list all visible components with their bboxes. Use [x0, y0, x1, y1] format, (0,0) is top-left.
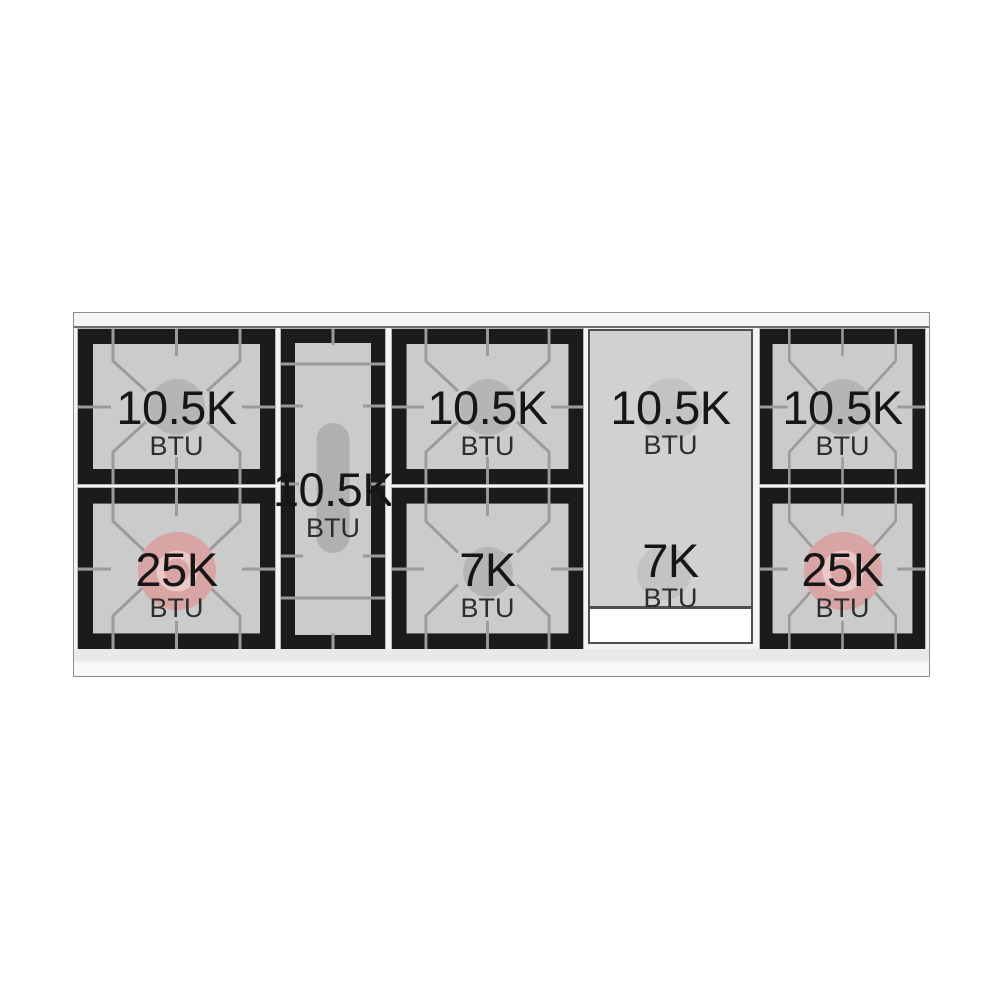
cooktop-back-edge: [74, 313, 929, 328]
burner-cap-icon-high-power: [804, 532, 882, 610]
burner-right-rear: 10.5K BTU: [760, 329, 925, 484]
burner-rating-label: 7K BTU: [590, 537, 751, 612]
burner-cap-icon: [460, 379, 516, 435]
burner-right-front: 25K BTU: [760, 488, 925, 649]
cooktop: 10.5K BTU 25K BTU: [73, 312, 930, 677]
section-griddle: 10.5K BTU 7K BTU: [588, 329, 753, 649]
oval-grate-icon: [281, 329, 385, 649]
burner-cap-icon: [815, 379, 871, 435]
griddle-tray: [588, 608, 753, 644]
burner-center-front: 7K BTU: [392, 488, 583, 649]
btu-power: 7K: [590, 537, 751, 584]
section-center-burner-stack: 10.5K BTU 7K BTU: [392, 329, 583, 649]
cooktop-front-edge: [74, 649, 929, 675]
burner-left-front: 25K BTU: [78, 488, 275, 649]
btu-unit: BTU: [590, 431, 751, 459]
burner-left-rear: 10.5K BTU: [78, 329, 275, 484]
burner-center-rear: 10.5K BTU: [392, 329, 583, 484]
section-center-left-oval-burner: 10.5K BTU: [281, 329, 385, 649]
burner-cap-icon-high-power: [138, 532, 216, 610]
burner-cap-icon: [463, 547, 513, 597]
burner-cap-icon: [149, 379, 205, 435]
section-right-burner-stack: 10.5K BTU 25K BTU: [760, 329, 925, 649]
section-left-burner-stack: 10.5K BTU 25K BTU: [78, 329, 275, 649]
griddle-plate: 10.5K BTU 7K BTU: [588, 329, 753, 608]
btu-power: 10.5K: [590, 384, 751, 431]
burner-rating-label: 10.5K BTU: [590, 384, 751, 459]
cooktop-diagram: 10.5K BTU 25K BTU: [0, 0, 1000, 1000]
